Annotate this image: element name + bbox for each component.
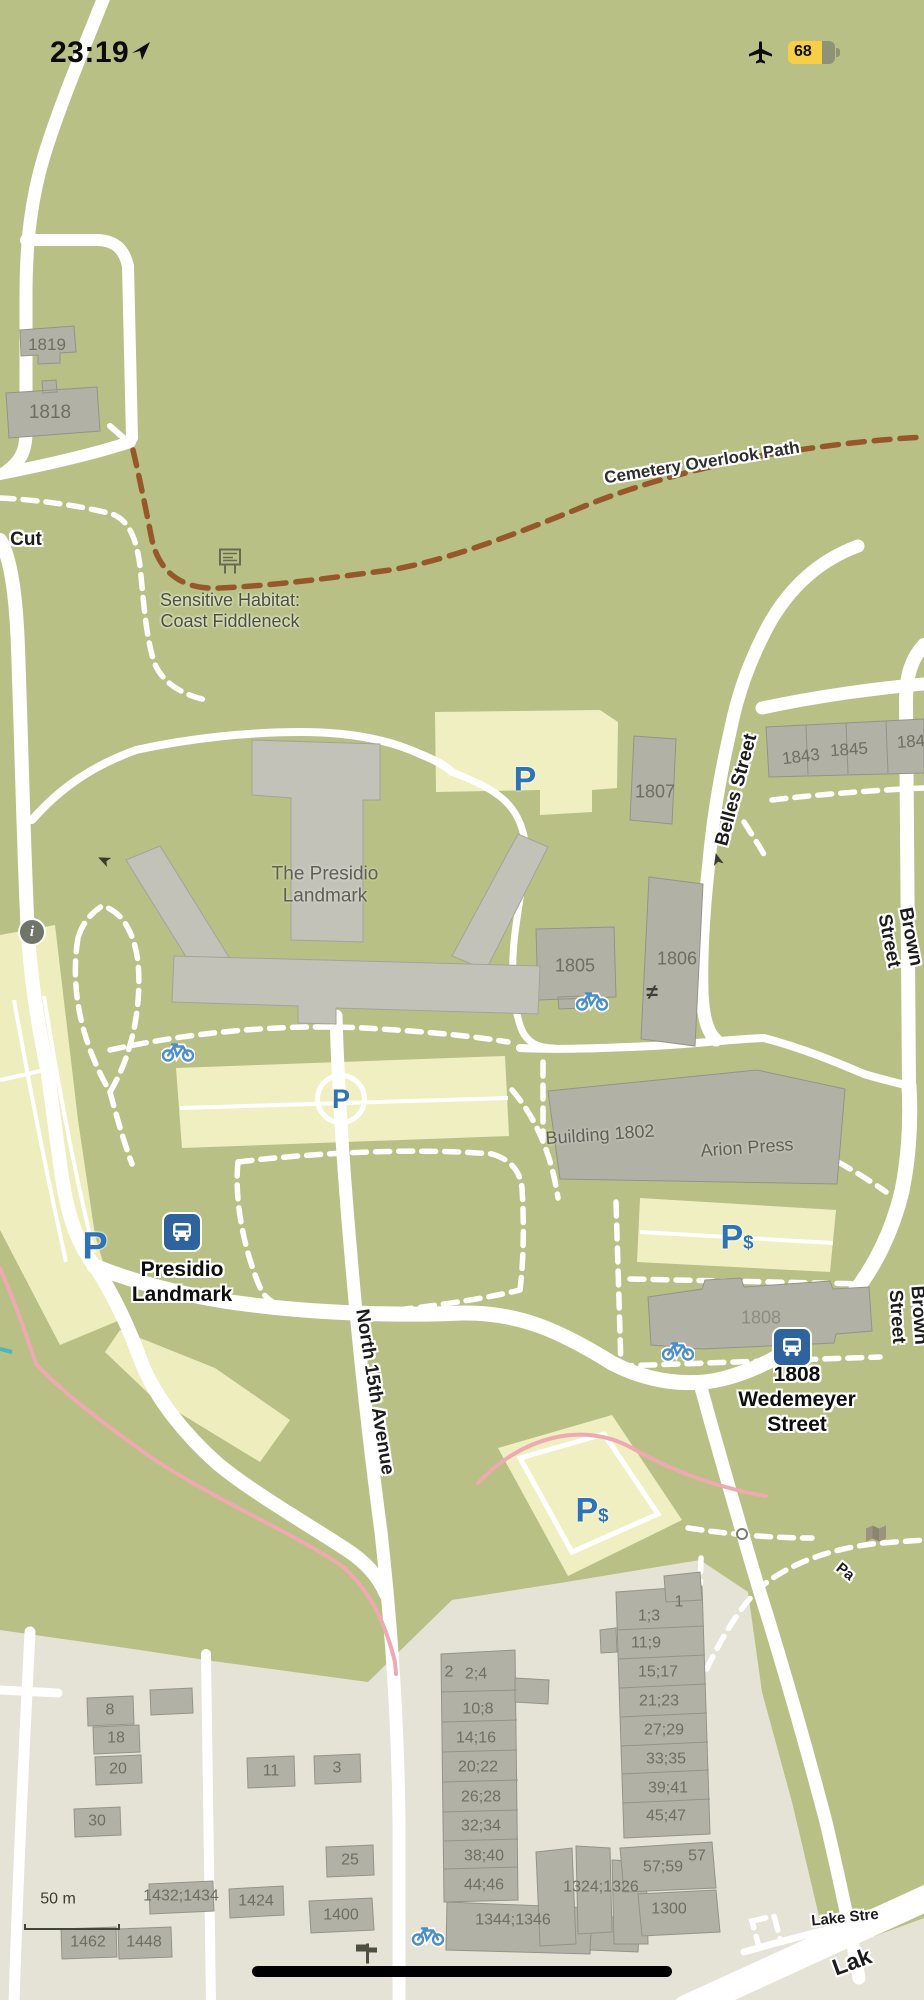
building-label: 1324;1326 bbox=[563, 1879, 639, 1898]
street-label-lake-large: Lak bbox=[829, 1942, 876, 1981]
building-label: 25 bbox=[341, 1852, 359, 1871]
building-label: 1400 bbox=[323, 1907, 359, 1926]
map-kiosk-icon bbox=[865, 1525, 887, 1548]
building-label: 14;16 bbox=[456, 1730, 496, 1749]
building-label: 44;46 bbox=[464, 1877, 504, 1896]
building-label: 45;47 bbox=[646, 1808, 686, 1827]
building-label: 15;17 bbox=[638, 1664, 678, 1683]
building-label: 30 bbox=[88, 1813, 106, 1832]
parking-icon-top[interactable]: P bbox=[514, 761, 537, 800]
clock: 23:19 bbox=[50, 36, 129, 70]
building-label: 2 bbox=[445, 1664, 454, 1683]
building-label: 3 bbox=[333, 1760, 342, 1779]
status-bar: 23:19 68 bbox=[0, 0, 924, 90]
battery-indicator: 68 bbox=[788, 41, 835, 64]
path-label-pa: Pa bbox=[832, 1559, 857, 1584]
building-label: 38;40 bbox=[464, 1848, 504, 1867]
scale-label: 50 m bbox=[40, 1891, 76, 1910]
bicycle-icon bbox=[661, 1339, 695, 1368]
gate-icon: ≠ bbox=[646, 981, 658, 1005]
building-label: 1819 bbox=[28, 335, 66, 355]
street-label-belles: Belles Street bbox=[711, 731, 762, 848]
building-label-arion-press: Arion Press bbox=[700, 1134, 794, 1162]
street-label-brown-1: Brown Street bbox=[871, 906, 924, 973]
building-label: 184 bbox=[896, 731, 924, 753]
building-label: 10;8 bbox=[462, 1701, 493, 1720]
building-label-1802: Building 1802 bbox=[545, 1121, 655, 1150]
street-label-brown-2: Brown Street bbox=[883, 1285, 924, 1347]
street-label-cut: Cut bbox=[10, 529, 42, 551]
airplane-mode-icon bbox=[748, 40, 774, 71]
street-label-lake-small: Lake Stre bbox=[810, 1906, 879, 1931]
bicycle-icon bbox=[411, 1924, 445, 1953]
building-label: 1808 bbox=[741, 1307, 781, 1328]
paid-parking-icon-upper[interactable]: P$ bbox=[720, 1219, 753, 1258]
building-label: 26;28 bbox=[461, 1789, 501, 1808]
building-label: 18 bbox=[107, 1730, 125, 1749]
building-label: 1806 bbox=[657, 948, 697, 969]
building-label: 1 bbox=[675, 1594, 684, 1613]
bicycle-icon bbox=[575, 989, 609, 1018]
trail-marker-dot bbox=[736, 1528, 748, 1540]
location-arrow-icon bbox=[130, 40, 152, 67]
building-label: 1462 bbox=[70, 1934, 106, 1953]
building-label: 1807 bbox=[635, 781, 675, 802]
building-label: 1344;1346 bbox=[475, 1912, 551, 1931]
building-label: 11 bbox=[263, 1763, 280, 1782]
building-label: 20 bbox=[109, 1761, 127, 1780]
parking-icon-circle[interactable]: P bbox=[315, 1073, 367, 1125]
building-label: 21;23 bbox=[639, 1693, 679, 1712]
poi-label-1808-wedemeyer[interactable]: 1808 Wedemeyer Street bbox=[734, 1363, 861, 1437]
poi-label-presidio-landmark[interactable]: Presidio Landmark bbox=[132, 1258, 232, 1308]
label-layer: CutCemetery Overlook PathBelles StreetBr… bbox=[0, 0, 924, 2000]
path-label-cemetery-overlook: Cemetery Overlook Path bbox=[603, 438, 801, 489]
bus-stop-icon-wedemeyer[interactable] bbox=[772, 1327, 812, 1367]
building-label: 1843 bbox=[781, 745, 821, 770]
street-label-north-15th: North 15th Avenue bbox=[350, 1308, 398, 1477]
bicycle-icon bbox=[161, 1040, 195, 1069]
building-label: 1845 bbox=[829, 739, 868, 762]
building-label: 1805 bbox=[555, 955, 595, 976]
building-label: 1448 bbox=[126, 1934, 162, 1953]
building-label: 57 bbox=[688, 1848, 706, 1867]
building-label: 27;29 bbox=[644, 1722, 684, 1741]
building-label: 32;34 bbox=[461, 1818, 501, 1837]
home-indicator[interactable] bbox=[252, 1966, 672, 1977]
building-label: 1432;1434 bbox=[143, 1888, 219, 1907]
building-label: 11;9 bbox=[631, 1635, 661, 1654]
habitat-sign-icon bbox=[218, 548, 242, 581]
building-label: 39;41 bbox=[648, 1780, 688, 1799]
map-canvas[interactable]: CutCemetery Overlook PathBelles StreetBr… bbox=[0, 0, 924, 2000]
building-label: 33;35 bbox=[646, 1751, 686, 1770]
paid-parking-icon-lower[interactable]: P$ bbox=[575, 1492, 608, 1531]
building-label: 1300 bbox=[651, 1901, 687, 1920]
building-label: 1818 bbox=[29, 402, 71, 424]
parking-icon-left[interactable]: P bbox=[82, 1226, 107, 1269]
building-label: 2;4 bbox=[465, 1666, 487, 1685]
building-label: 1424 bbox=[238, 1893, 274, 1912]
bus-stop-icon-presidio[interactable] bbox=[162, 1212, 202, 1252]
building-label: 8 bbox=[106, 1702, 115, 1721]
info-icon[interactable]: i bbox=[18, 918, 46, 946]
building-label: 20;22 bbox=[458, 1759, 498, 1778]
scale-bar bbox=[24, 1928, 120, 1930]
building-label-the-presidio-landmark: The Presidio Landmark bbox=[272, 864, 379, 909]
building-label: 1;3 bbox=[638, 1608, 660, 1627]
area-label-sensitive-habitat: Sensitive Habitat: Coast Fiddleneck bbox=[160, 590, 300, 632]
building-label: 57;59 bbox=[643, 1859, 683, 1878]
